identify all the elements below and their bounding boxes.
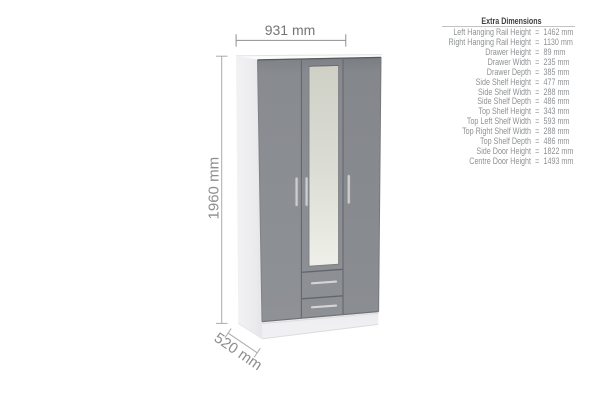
svg-text:1960 mm: 1960 mm: [205, 157, 222, 220]
svg-text:931 mm: 931 mm: [265, 22, 316, 38]
svg-text:520 mm: 520 mm: [211, 329, 265, 374]
